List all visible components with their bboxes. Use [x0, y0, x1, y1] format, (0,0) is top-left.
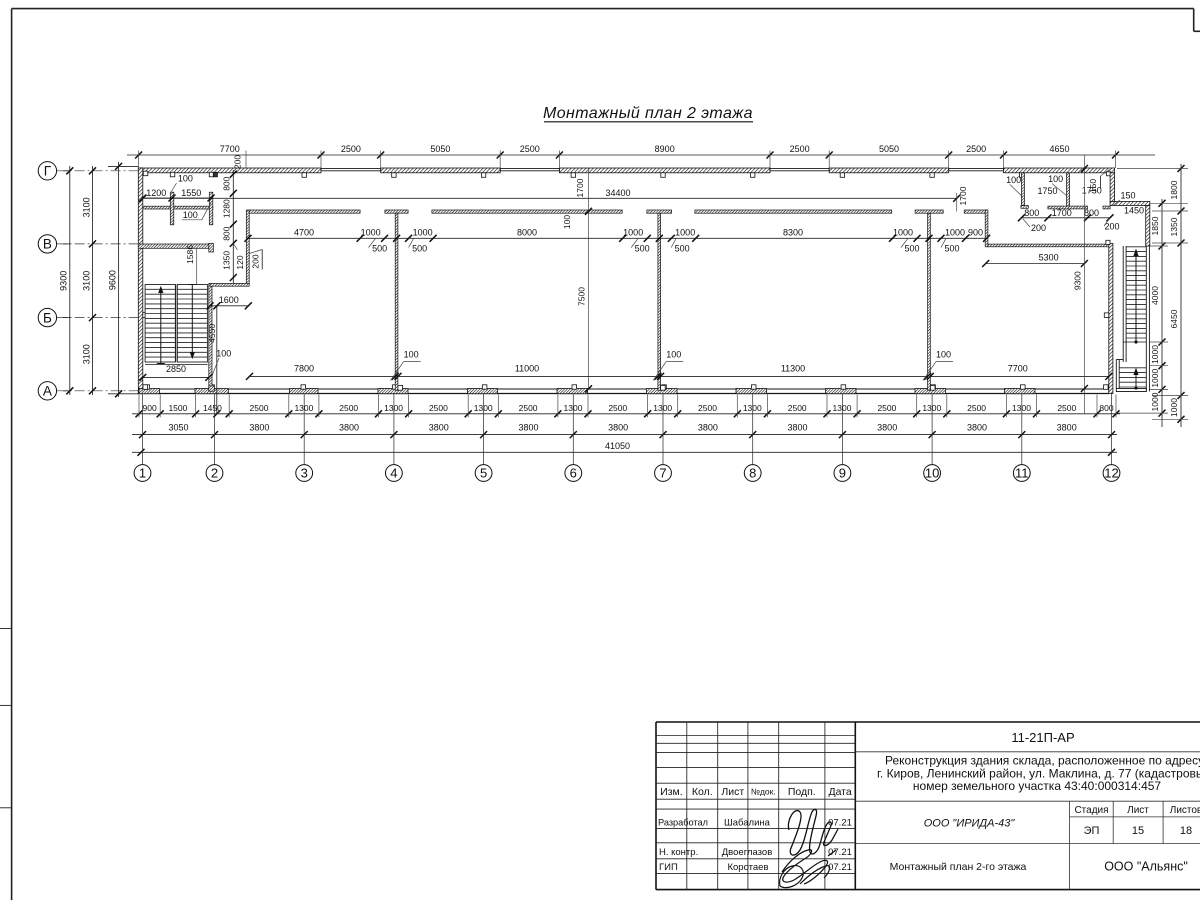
svg-text:Монтажный план 2 этажа: Монтажный план 2 этажа [543, 105, 753, 122]
svg-text:500: 500 [904, 243, 919, 253]
svg-text:3800: 3800 [339, 423, 359, 433]
svg-text:1450: 1450 [203, 403, 222, 413]
svg-text:1200: 1200 [146, 188, 166, 198]
svg-text:2500: 2500 [339, 403, 358, 413]
svg-text:10: 10 [925, 466, 939, 481]
svg-text:1500: 1500 [168, 403, 187, 413]
svg-text:3800: 3800 [877, 423, 897, 433]
svg-text:4650: 4650 [1049, 144, 1069, 154]
svg-text:3800: 3800 [608, 423, 628, 433]
svg-text:4550: 4550 [207, 324, 217, 343]
svg-text:5: 5 [480, 466, 487, 481]
svg-text:2500: 2500 [519, 403, 538, 413]
svg-text:А: А [43, 384, 52, 399]
svg-text:1750: 1750 [1037, 186, 1057, 196]
svg-text:номер земельного участка 43:40: номер земельного участка 43:40:000314:45… [913, 779, 1162, 793]
svg-text:1000: 1000 [1169, 398, 1179, 417]
svg-text:8000: 8000 [517, 227, 537, 237]
svg-text:9300: 9300 [59, 271, 69, 291]
svg-text:4: 4 [390, 466, 397, 481]
svg-text:1586: 1586 [185, 245, 195, 264]
svg-text:1000: 1000 [893, 227, 913, 237]
svg-text:7700: 7700 [220, 144, 240, 154]
svg-text:2500: 2500 [788, 403, 807, 413]
svg-text:800: 800 [1084, 208, 1099, 218]
svg-text:2500: 2500 [967, 403, 986, 413]
svg-text:1000: 1000 [1150, 368, 1160, 387]
svg-text:100: 100 [1048, 174, 1063, 184]
svg-text:Разработал: Разработал [658, 818, 708, 828]
svg-text:2500: 2500 [877, 403, 896, 413]
svg-text:Двоеглазов: Двоеглазов [722, 847, 773, 858]
svg-text:100: 100 [562, 215, 572, 229]
svg-text:18: 18 [1180, 825, 1192, 837]
svg-text:200: 200 [233, 155, 243, 169]
svg-text:500: 500 [412, 243, 427, 253]
svg-text:ООО "Альянс": ООО "Альянс" [1104, 860, 1188, 874]
svg-text:Листов: Листов [1170, 805, 1200, 816]
svg-text:100: 100 [183, 210, 198, 220]
svg-text:12: 12 [1104, 466, 1118, 481]
svg-text:Лист: Лист [1127, 805, 1149, 816]
svg-text:100: 100 [178, 174, 193, 184]
svg-text:100: 100 [404, 349, 419, 359]
svg-text:3100: 3100 [81, 197, 91, 217]
svg-text:6450: 6450 [1169, 309, 1179, 328]
svg-text:500: 500 [675, 243, 690, 253]
svg-text:100: 100 [666, 349, 681, 359]
svg-text:1280: 1280 [221, 199, 231, 218]
svg-text:5300: 5300 [1039, 253, 1059, 263]
svg-text:41050: 41050 [605, 441, 630, 451]
svg-text:2500: 2500 [1057, 403, 1076, 413]
svg-text:07.21: 07.21 [828, 862, 852, 873]
svg-text:ГИП: ГИП [659, 862, 678, 873]
svg-text:Монтажный план 2-го этажа: Монтажный план 2-го этажа [890, 861, 1027, 873]
svg-text:5050: 5050 [879, 144, 899, 154]
svg-text:500: 500 [372, 243, 387, 253]
svg-text:1800: 1800 [1169, 180, 1179, 199]
svg-text:1550: 1550 [181, 188, 201, 198]
svg-text:3800: 3800 [1057, 423, 1077, 433]
svg-text:Стадия: Стадия [1074, 805, 1108, 816]
svg-text:3800: 3800 [698, 423, 718, 433]
svg-text:8900: 8900 [655, 144, 675, 154]
svg-text:7: 7 [659, 466, 666, 481]
svg-text:100: 100 [1006, 175, 1021, 185]
svg-text:2: 2 [211, 466, 218, 481]
svg-text:4000: 4000 [1150, 286, 1160, 305]
svg-text:7700: 7700 [1008, 363, 1028, 373]
svg-text:В: В [43, 237, 52, 252]
svg-text:900: 900 [143, 403, 157, 413]
svg-text:500: 500 [944, 243, 959, 253]
svg-text:3100: 3100 [81, 344, 91, 364]
svg-text:Г: Г [44, 164, 52, 179]
svg-text:1700: 1700 [575, 178, 585, 197]
svg-text:9300: 9300 [1072, 271, 1082, 290]
svg-text:1350: 1350 [221, 251, 231, 270]
svg-text:1700: 1700 [958, 186, 968, 205]
svg-text:2500: 2500 [608, 403, 627, 413]
svg-text:Дата: Дата [828, 786, 851, 798]
svg-text:7800: 7800 [294, 363, 314, 373]
svg-text:15: 15 [1132, 825, 1144, 837]
svg-text:500: 500 [635, 243, 650, 253]
svg-text:1450: 1450 [1124, 206, 1144, 216]
svg-text:8: 8 [749, 466, 756, 481]
svg-text:3800: 3800 [967, 423, 987, 433]
svg-text:1000: 1000 [675, 227, 695, 237]
svg-text:Н. контр.: Н. контр. [659, 847, 698, 858]
svg-text:1: 1 [139, 466, 146, 481]
svg-text:150: 150 [1120, 191, 1135, 201]
svg-text:3: 3 [301, 466, 308, 481]
svg-text:11000: 11000 [515, 363, 539, 373]
svg-text:Б: Б [43, 310, 52, 325]
svg-text:3800: 3800 [518, 423, 538, 433]
svg-text:1000: 1000 [945, 227, 965, 237]
svg-text:9: 9 [839, 466, 846, 481]
svg-text:2500: 2500 [250, 403, 269, 413]
svg-text:120: 120 [235, 255, 245, 269]
svg-text:800: 800 [1024, 208, 1039, 218]
svg-text:100: 100 [936, 349, 951, 359]
svg-text:200: 200 [251, 254, 261, 268]
svg-text:3100: 3100 [81, 271, 91, 291]
svg-text:2500: 2500 [520, 144, 540, 154]
svg-text:9600: 9600 [107, 270, 117, 290]
svg-text:3050: 3050 [168, 423, 188, 433]
svg-text:3800: 3800 [787, 423, 807, 433]
svg-text:Изм.: Изм. [660, 786, 683, 798]
svg-text:2500: 2500 [698, 403, 717, 413]
svg-text:1000: 1000 [623, 227, 643, 237]
svg-text:07.21: 07.21 [828, 847, 852, 858]
svg-text:1600: 1600 [219, 295, 239, 305]
svg-text:1000: 1000 [1150, 345, 1160, 364]
svg-text:2500: 2500 [966, 144, 986, 154]
svg-text:34400: 34400 [605, 188, 630, 198]
svg-text:Лист: Лист [721, 786, 744, 798]
svg-text:1000: 1000 [361, 227, 381, 237]
svg-text:2500: 2500 [429, 403, 448, 413]
svg-text:Кол.: Кол. [692, 786, 713, 798]
svg-text:ЭП: ЭП [1084, 825, 1100, 837]
svg-text:3800: 3800 [429, 423, 449, 433]
svg-text:Коротаев: Коротаев [727, 862, 768, 873]
svg-text:150: 150 [1088, 179, 1098, 193]
svg-text:11-21П-АР: 11-21П-АР [1011, 730, 1074, 745]
svg-text:800: 800 [221, 176, 231, 190]
svg-text:8300: 8300 [783, 227, 803, 237]
svg-text:11300: 11300 [781, 363, 805, 373]
svg-text:2850: 2850 [166, 364, 186, 374]
svg-text:Подп.: Подп. [788, 786, 816, 798]
svg-text:6: 6 [570, 466, 577, 481]
svg-text:ООО "ИРИДА-43": ООО "ИРИДА-43" [924, 817, 1016, 829]
svg-text:200: 200 [1031, 223, 1046, 233]
svg-text:1350: 1350 [1169, 217, 1179, 236]
svg-text:900: 900 [968, 227, 983, 237]
svg-text:200: 200 [1104, 222, 1119, 232]
svg-text:3800: 3800 [249, 423, 269, 433]
svg-text:№док.: №док. [751, 787, 776, 797]
svg-text:100: 100 [216, 348, 231, 358]
svg-text:1000: 1000 [413, 227, 433, 237]
svg-text:4700: 4700 [294, 227, 314, 237]
svg-text:7500: 7500 [577, 287, 587, 306]
svg-text:800: 800 [221, 226, 231, 240]
svg-text:1850: 1850 [1150, 216, 1160, 235]
svg-text:2500: 2500 [341, 144, 361, 154]
svg-text:1700: 1700 [1052, 208, 1072, 218]
svg-text:2500: 2500 [790, 144, 810, 154]
svg-text:5050: 5050 [430, 144, 450, 154]
svg-text:11: 11 [1015, 466, 1029, 481]
svg-text:Шабалина: Шабалина [724, 818, 771, 829]
